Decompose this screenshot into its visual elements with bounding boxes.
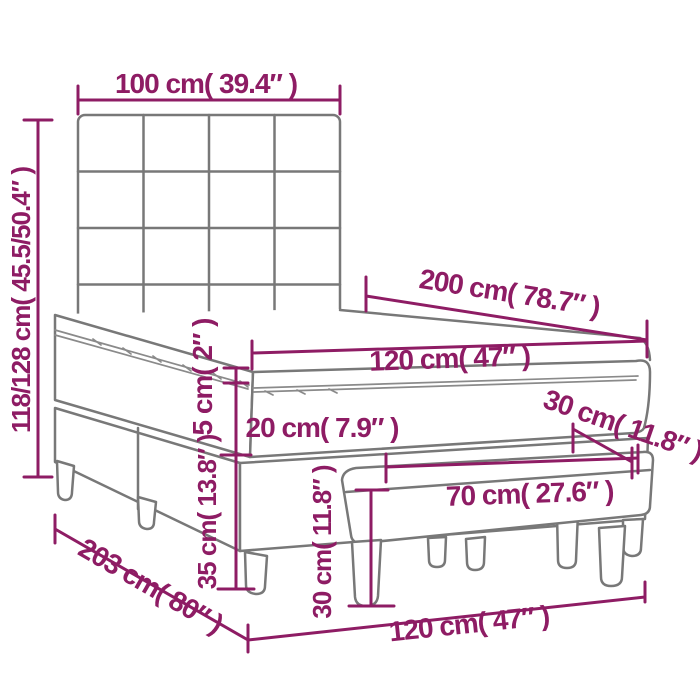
bed-dimension-diagram: 100 cm( 39.4″ ) 118/128 cm( 45.5/50.4″ )… [0,0,700,700]
label-bed-length: 200 cm( 78.7″ ) [417,263,602,322]
diagram-canvas: 100 cm( 39.4″ ) 118/128 cm( 45.5/50.4″ )… [0,0,700,700]
label-total-height: 118/128 cm( 45.5/50.4″ ) [6,167,36,433]
label-mattress-thickness: 20 cm( 7.9″ ) [246,412,399,443]
label-headboard-width: 100 cm( 39.4″ ) [115,68,297,99]
bench-leg [599,526,625,586]
bed-leg [138,497,156,529]
bench-leg [352,540,381,606]
label-mattress-width: 120 cm( 47″ ) [369,340,531,377]
headboard [78,115,340,333]
bed-leg [623,519,643,556]
label-topper-thickness: 5 cm( 2″ ) [187,318,218,435]
label-bench-height: 30 cm( 11.8″ ) [307,465,337,618]
bed-leg [428,537,446,567]
label-bench-width: 70 cm( 27.6″ ) [445,475,613,512]
label-base-width: 120 cm( 47″ ) [387,600,550,648]
dimension-total-height: 118/128 cm( 45.5/50.4″ ) [6,120,52,477]
dimension-headboard-width: 100 cm( 39.4″ ) [78,68,340,114]
label-base-height: 35 cm( 13.8″ ) [192,434,222,589]
bench-leg [466,537,485,570]
bed-leg [57,461,74,500]
